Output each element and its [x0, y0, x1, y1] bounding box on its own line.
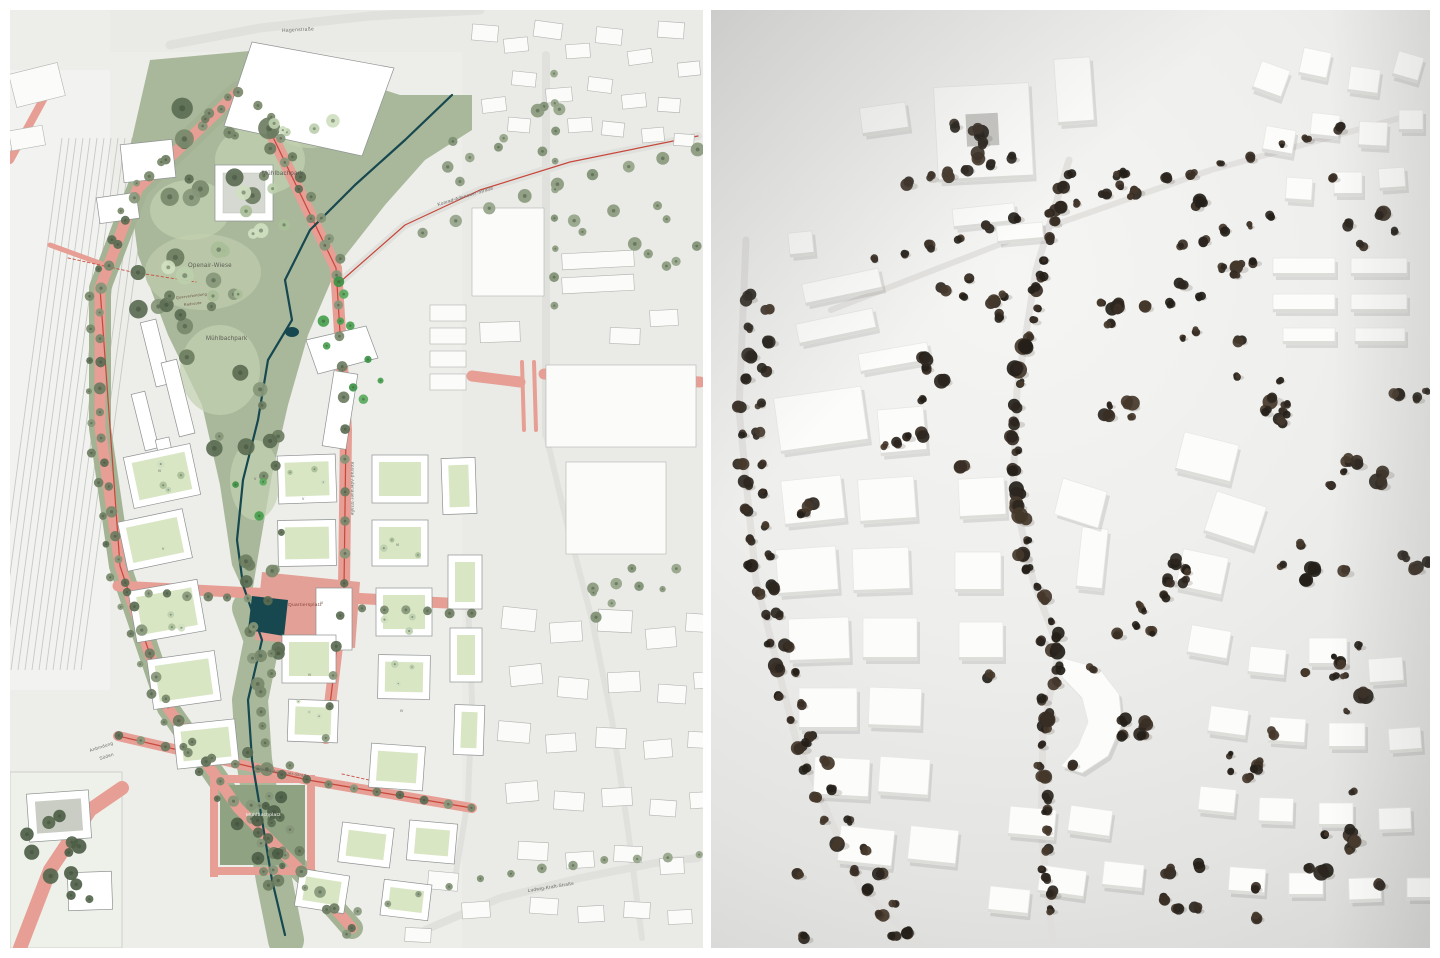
- map-tree-icon: [340, 424, 350, 434]
- map-tree-icon: [380, 605, 389, 614]
- map-tree-icon: [391, 660, 398, 667]
- map-tree-icon: [20, 827, 33, 840]
- map-tree-icon: [349, 383, 357, 391]
- map-tree-icon: [252, 852, 265, 865]
- existing-building: [549, 621, 582, 643]
- map-tree-icon: [96, 408, 104, 416]
- map-tree-icon: [206, 440, 223, 457]
- existing-building: [562, 274, 635, 294]
- map-tree-icon: [321, 480, 326, 485]
- map-tree-icon: [66, 891, 75, 900]
- map-tree-icon: [129, 300, 148, 319]
- map-tree-icon: [86, 357, 93, 364]
- openair-meadow: [145, 234, 261, 310]
- map-tree-icon: [85, 292, 95, 302]
- existing-building: [668, 909, 693, 924]
- map-tree-icon: [184, 174, 193, 183]
- existing-building: [643, 739, 672, 759]
- floor-count-label: VI: [320, 601, 323, 605]
- block-courtyard: [457, 635, 475, 675]
- map-tree-icon: [207, 302, 216, 311]
- map-tree-icon: [114, 731, 123, 740]
- map-tree-icon: [271, 461, 281, 471]
- map-tree-icon: [87, 449, 96, 458]
- map-tree-icon: [340, 548, 351, 559]
- existing-building: [693, 671, 703, 689]
- map-tree-icon: [549, 272, 559, 282]
- existing-building: [566, 43, 591, 59]
- map-tree-icon: [656, 152, 669, 165]
- existing-building: [497, 721, 531, 744]
- existing-building: [601, 121, 624, 137]
- map-tree-icon: [171, 98, 192, 119]
- map-tree-icon: [248, 228, 258, 238]
- block-courtyard: [379, 527, 421, 559]
- map-label: Mühlbachpark: [206, 336, 248, 342]
- map-tree-icon: [121, 578, 129, 586]
- map-tree-icon: [396, 791, 405, 800]
- map-tree-icon: [518, 189, 532, 203]
- map-tree-icon: [85, 895, 93, 903]
- map-tree-icon: [64, 866, 78, 880]
- block-courtyard: [414, 828, 450, 857]
- map-tree-icon: [104, 261, 114, 271]
- map-tree-icon: [633, 855, 642, 864]
- map-tree-icon: [259, 867, 268, 876]
- map-tree-icon: [628, 564, 637, 573]
- existing-building: [658, 97, 681, 113]
- map-label: Konrad-Adenauer-Straße: [350, 462, 355, 516]
- map-tree-icon: [87, 419, 95, 427]
- map-tree-icon: [95, 334, 104, 343]
- existing-building: [545, 733, 576, 753]
- existing-building: [553, 791, 584, 811]
- map-tree-icon: [195, 768, 204, 777]
- map-tree-icon: [261, 738, 270, 747]
- map-tree-icon: [587, 169, 598, 180]
- map-tree-icon: [607, 204, 620, 217]
- map-tree-icon: [159, 482, 166, 489]
- map-tree-icon: [644, 249, 653, 258]
- map-tree-icon: [114, 555, 122, 563]
- map-tree-icon: [129, 192, 140, 203]
- map-tree-icon: [103, 541, 110, 548]
- map-tree-icon: [129, 602, 139, 612]
- map-tree-icon: [339, 289, 348, 298]
- map-tree-icon: [206, 272, 222, 288]
- map-tree-icon: [568, 214, 581, 227]
- existing-building: [471, 24, 498, 42]
- map-tree-icon: [210, 241, 227, 258]
- map-tree-icon: [322, 734, 330, 742]
- map-tree-icon: [123, 588, 131, 596]
- map-tree-icon: [175, 309, 187, 321]
- photo-shading-overlay-right: [711, 10, 1430, 948]
- existing-building: [595, 27, 623, 46]
- map-tree-icon: [448, 137, 457, 146]
- masterplan-map-panel: HagenstraßeMühlbachparkOpenair-WieseQuer…: [10, 10, 703, 948]
- map-tree-icon: [136, 624, 148, 636]
- map-tree-icon: [244, 594, 252, 602]
- map-tree-icon: [306, 214, 315, 223]
- map-tree-icon: [381, 616, 389, 624]
- map-tree-icon: [121, 216, 130, 225]
- map-tree-icon: [173, 715, 185, 727]
- map-tree-icon: [692, 241, 702, 251]
- map-tree-icon: [423, 606, 432, 615]
- map-tree-icon: [106, 506, 117, 517]
- map-tree-icon: [232, 481, 239, 488]
- map-tree-icon: [467, 804, 475, 812]
- map-tree-icon: [442, 161, 453, 172]
- existing-building: [621, 93, 646, 109]
- map-tree-icon: [634, 581, 644, 591]
- map-tree-icon: [94, 382, 106, 394]
- block-courtyard: [295, 706, 332, 735]
- map-tree-icon: [145, 648, 155, 658]
- map-tree-icon: [568, 861, 577, 870]
- existing-building: [610, 327, 641, 344]
- existing-building: [509, 663, 543, 686]
- map-tree-icon: [268, 865, 278, 875]
- map-tree-icon: [157, 460, 165, 468]
- map-tree-icon: [160, 188, 178, 206]
- map-tree-icon: [499, 134, 508, 143]
- existing-building: [461, 901, 490, 919]
- map-tree-icon: [338, 391, 350, 403]
- map-tree-icon: [335, 331, 345, 341]
- map-tree-icon: [331, 641, 342, 652]
- page: { "page": {"background": "#ffffff", "pan…: [0, 0, 1440, 958]
- map-tree-icon: [249, 622, 258, 631]
- map-tree-icon: [95, 357, 106, 368]
- map-tree-icon: [70, 878, 82, 890]
- map-tree-icon: [239, 554, 253, 568]
- map-tree-icon: [246, 800, 257, 811]
- map-tree-icon: [578, 228, 586, 236]
- existing-building: [649, 799, 676, 817]
- map-tree-icon: [337, 361, 348, 372]
- map-tree-icon: [99, 512, 107, 520]
- map-tree-icon: [671, 257, 680, 266]
- map-tree-icon: [380, 544, 387, 551]
- map-tree-icon: [378, 378, 384, 384]
- map-tree-icon: [445, 883, 452, 890]
- map-tree-icon: [552, 158, 559, 165]
- map-tree-icon: [107, 235, 116, 244]
- existing-building: [645, 627, 677, 650]
- map-tree-icon: [161, 260, 175, 274]
- existing-building: [568, 117, 593, 133]
- map-tree-icon: [267, 183, 278, 194]
- map-tree-icon: [264, 142, 276, 154]
- map-tree-icon: [409, 613, 416, 620]
- map-tree-icon: [353, 907, 362, 916]
- existing-building: [562, 250, 635, 270]
- map-tree-icon: [550, 70, 558, 78]
- existing-building: [430, 374, 466, 390]
- map-tree-icon: [279, 126, 287, 134]
- existing-building: [511, 71, 536, 87]
- map-tree-icon: [302, 885, 308, 891]
- map-tree-icon: [409, 664, 414, 669]
- map-tree-icon: [340, 454, 350, 464]
- map-tree-icon: [295, 185, 303, 193]
- map-tree-icon: [226, 168, 244, 186]
- map-tree-icon: [165, 487, 171, 493]
- block-courtyard: [448, 465, 469, 508]
- map-label: Mühlbachplatz: [246, 812, 281, 818]
- map-tree-icon: [342, 930, 351, 939]
- map-tree-icon: [445, 608, 455, 618]
- existing-building: [546, 365, 696, 447]
- map-tree-icon: [553, 103, 565, 115]
- map-tree-icon: [215, 432, 224, 441]
- map-tree-icon: [259, 478, 266, 485]
- masterplan-map: HagenstraßeMühlbachparkOpenair-WieseQuer…: [10, 10, 703, 948]
- map-tree-icon: [228, 796, 239, 807]
- map-tree-icon: [551, 127, 560, 136]
- existing-building: [578, 905, 605, 922]
- map-tree-icon: [483, 202, 495, 214]
- existing-building: [685, 613, 703, 633]
- existing-building: [657, 21, 684, 39]
- map-tree-icon: [288, 152, 297, 161]
- map-tree-icon: [24, 845, 39, 860]
- map-tree-icon: [267, 669, 276, 678]
- map-tree-icon: [552, 245, 558, 251]
- map-tree-icon: [326, 114, 340, 128]
- map-tree-icon: [590, 589, 597, 596]
- existing-building: [507, 117, 530, 133]
- map-tree-icon: [696, 851, 703, 858]
- map-tree-icon: [232, 365, 248, 381]
- map-tree-icon: [401, 605, 410, 614]
- map-tree-icon: [161, 742, 171, 752]
- map-tree-icon: [322, 905, 332, 915]
- map-tree-icon: [507, 870, 515, 878]
- existing-building: [674, 133, 695, 146]
- pond: [285, 327, 299, 337]
- map-tree-icon: [336, 611, 345, 620]
- map-tree-icon: [95, 265, 102, 272]
- map-tree-icon: [242, 747, 253, 758]
- map-tree-icon: [663, 853, 673, 863]
- street-pink: [534, 362, 536, 430]
- existing-building: [481, 97, 507, 114]
- map-tree-icon: [415, 552, 421, 558]
- existing-building: [430, 328, 466, 344]
- map-tree-icon: [214, 795, 221, 802]
- map-tree-icon: [106, 573, 114, 581]
- map-tree-icon: [162, 695, 171, 704]
- map-tree-icon: [231, 817, 244, 830]
- map-tree-icon: [272, 874, 284, 886]
- existing-building: [602, 787, 633, 807]
- map-tree-icon: [477, 875, 484, 882]
- map-tree-icon: [663, 215, 671, 223]
- map-tree-icon: [86, 324, 95, 333]
- map-tree-icon: [364, 356, 371, 363]
- map-tree-icon: [240, 205, 252, 217]
- map-tree-icon: [309, 123, 320, 134]
- existing-building: [587, 77, 613, 94]
- map-tree-icon: [168, 623, 175, 630]
- map-tree-icon: [551, 185, 559, 193]
- map-tree-icon: [117, 208, 124, 215]
- map-tree-icon: [164, 291, 175, 302]
- map-tree-icon: [217, 105, 225, 113]
- map-tree-icon: [329, 671, 338, 680]
- map-tree-icon: [253, 101, 262, 110]
- map-tree-icon: [100, 458, 109, 467]
- map-tree-icon: [137, 661, 144, 668]
- map-tree-icon: [279, 863, 285, 869]
- map-tree-icon: [204, 108, 214, 118]
- map-label: Openair-Wiese: [188, 263, 232, 269]
- map-tree-icon: [275, 791, 287, 803]
- map-tree-icon: [127, 630, 135, 638]
- map-tree-icon: [110, 531, 120, 541]
- map-tree-icon: [266, 565, 279, 578]
- block-courtyard: [385, 662, 424, 693]
- map-tree-icon: [340, 579, 348, 587]
- map-tree-icon: [610, 578, 622, 590]
- map-tree-icon: [254, 511, 264, 521]
- map-tree-icon: [418, 228, 428, 238]
- map-tree-icon: [105, 482, 114, 491]
- street-pink: [522, 362, 524, 430]
- map-tree-icon: [628, 237, 642, 251]
- map-tree-icon: [175, 129, 194, 148]
- map-tree-icon: [286, 825, 295, 834]
- map-tree-icon: [278, 219, 290, 231]
- map-tree-icon: [263, 434, 278, 449]
- map-tree-icon: [233, 87, 243, 97]
- map-tree-icon: [144, 589, 152, 597]
- block-courtyard: [460, 712, 477, 749]
- map-tree-icon: [163, 589, 171, 597]
- map-tree-icon: [550, 302, 558, 310]
- map-tree-icon: [455, 177, 465, 187]
- existing-building: [430, 351, 466, 367]
- existing-building: [657, 684, 686, 704]
- map-tree-icon: [43, 868, 59, 884]
- map-tree-icon: [253, 382, 268, 397]
- map-tree-icon: [316, 713, 322, 719]
- map-tree-icon: [182, 591, 192, 601]
- map-tree-icon: [311, 466, 318, 473]
- map-tree-icon: [623, 161, 635, 173]
- map-tree-icon: [358, 604, 366, 612]
- map-tree-icon: [450, 215, 462, 227]
- map-tree-icon: [253, 827, 263, 837]
- map-tree-icon: [256, 707, 266, 717]
- model-photo-panel: [711, 10, 1430, 948]
- existing-building: [405, 927, 432, 942]
- map-tree-icon: [551, 215, 558, 222]
- block-courtyard: [379, 462, 421, 496]
- map-tree-icon: [265, 792, 273, 800]
- map-tree-icon: [323, 342, 331, 350]
- map-tree-icon: [324, 780, 332, 788]
- map-label: Quartiersplatz: [288, 602, 322, 608]
- map-tree-icon: [267, 649, 275, 657]
- map-tree-icon: [183, 189, 201, 207]
- map-tree-icon: [146, 689, 156, 699]
- map-tree-icon: [600, 856, 608, 864]
- map-tree-icon: [537, 863, 547, 873]
- existing-building: [627, 48, 653, 65]
- existing-building: [557, 677, 589, 700]
- map-tree-icon: [333, 276, 344, 287]
- map-tree-icon: [231, 132, 239, 140]
- existing-building: [595, 727, 626, 749]
- map-tree-icon: [396, 681, 401, 686]
- existing-building: [480, 321, 521, 342]
- existing-building: [597, 609, 632, 633]
- map-tree-icon: [53, 810, 65, 822]
- map-tree-icon: [306, 192, 316, 202]
- map-tree-icon: [494, 143, 503, 152]
- map-tree-icon: [96, 433, 105, 442]
- map-tree-icon: [608, 599, 616, 607]
- map-tree-icon: [259, 722, 267, 730]
- existing-building: [650, 309, 679, 326]
- inset-map: [10, 772, 122, 948]
- map-tree-icon: [207, 290, 219, 302]
- existing-building: [566, 462, 666, 554]
- map-tree-icon: [255, 686, 266, 697]
- map-tree-icon: [346, 321, 355, 330]
- existing-building: [607, 671, 640, 693]
- map-tree-icon: [207, 754, 216, 763]
- existing-building: [641, 127, 664, 143]
- map-tree-icon: [72, 839, 87, 854]
- existing-building: [689, 791, 703, 809]
- map-tree-icon: [42, 816, 55, 829]
- map-tree-icon: [167, 611, 174, 618]
- map-tree-icon: [444, 799, 454, 809]
- existing-building: [624, 901, 651, 918]
- map-tree-icon: [238, 438, 255, 455]
- map-tree-icon: [240, 575, 253, 588]
- map-tree-icon: [280, 158, 290, 168]
- existing-building: [545, 87, 572, 103]
- map-tree-icon: [467, 609, 476, 618]
- block-courtyard: [284, 461, 329, 497]
- map-tree-icon: [538, 146, 548, 156]
- map-tree-icon: [258, 401, 267, 410]
- map-tree-icon: [254, 650, 267, 663]
- map-tree-icon: [272, 848, 283, 859]
- block-courtyard: [388, 887, 424, 913]
- existing-building: [677, 61, 700, 77]
- map-tree-icon: [151, 672, 162, 683]
- map-tree-icon: [405, 627, 413, 635]
- map-tree-icon: [340, 516, 349, 525]
- map-tree-icon: [86, 388, 92, 394]
- map-tree-icon: [231, 760, 240, 769]
- map-tree-icon: [96, 308, 104, 316]
- map-tree-icon: [340, 487, 349, 496]
- map-tree-icon: [389, 537, 394, 542]
- block-courtyard: [289, 642, 329, 676]
- map-tree-icon: [307, 710, 311, 714]
- map-tree-icon: [415, 891, 421, 897]
- map-tree-icon: [216, 777, 224, 785]
- existing-building: [505, 781, 539, 804]
